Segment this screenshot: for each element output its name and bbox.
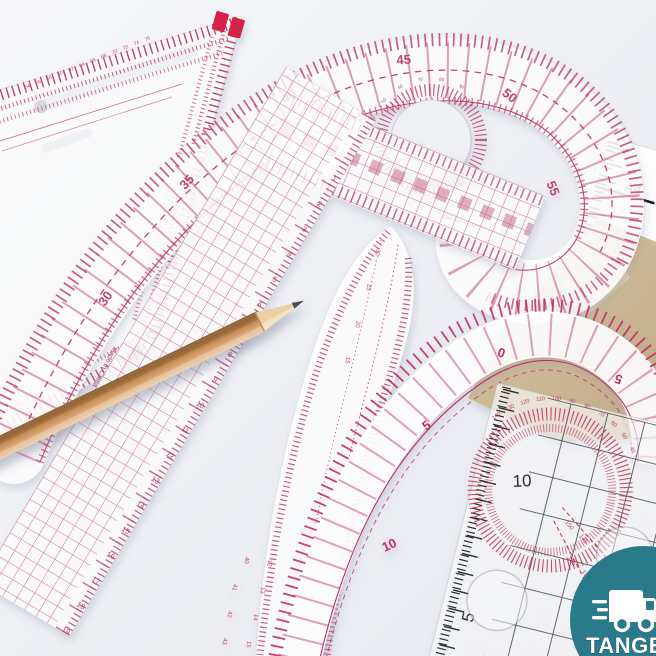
quilting-ruler-number-10: 10 xyxy=(512,471,532,491)
svg-text:45: 45 xyxy=(396,52,411,68)
rulers-flatlay-photo: 545658606264666870727476 A4 B5 xyxy=(0,0,656,656)
logo-brand-text: TANGERA xyxy=(586,633,656,656)
scale-number: 110 xyxy=(536,396,545,403)
scale-number: 100 xyxy=(552,396,562,403)
photo-canvas: 545658606264666870727476 A4 B5 xyxy=(0,0,656,656)
